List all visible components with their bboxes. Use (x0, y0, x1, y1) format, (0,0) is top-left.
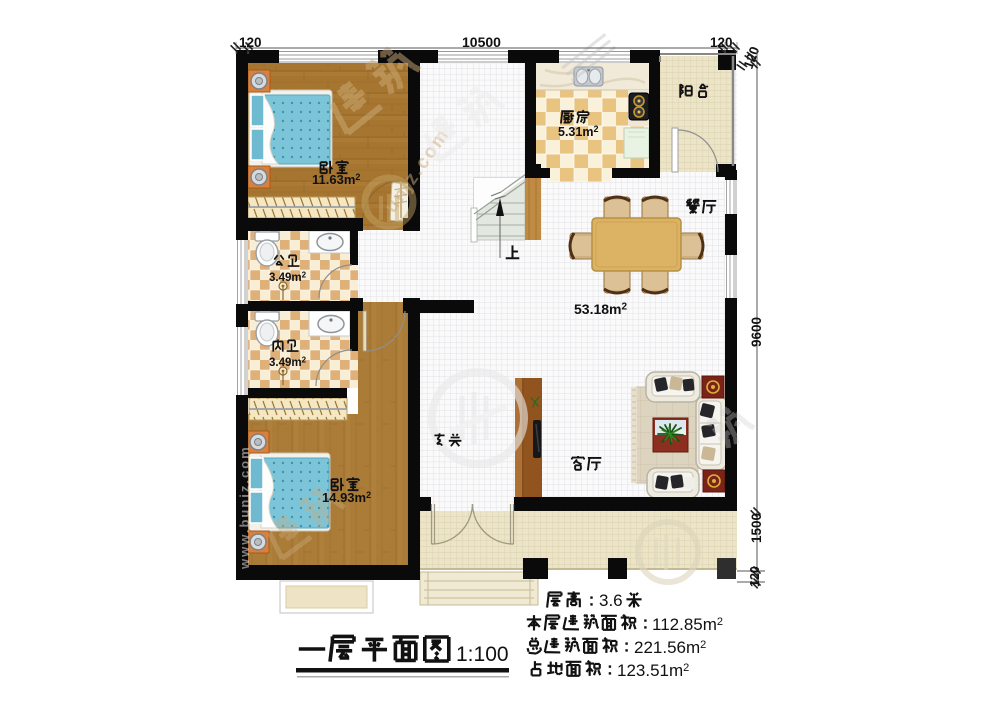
svg-text:123.51m2: 123.51m2 (617, 661, 689, 680)
svg-text:www.bunjz.com: www.bunjz.com (237, 445, 252, 570)
svg-text:3.49m2: 3.49m2 (269, 356, 307, 370)
svg-text:221.56m2: 221.56m2 (634, 638, 706, 657)
svg-text:120: 120 (748, 566, 762, 587)
svg-text:9600: 9600 (749, 317, 764, 347)
svg-text:14.93m2: 14.93m2 (322, 490, 371, 505)
svg-text:120: 120 (710, 35, 733, 50)
svg-text:1500: 1500 (749, 513, 764, 543)
svg-text:3.6: 3.6 (599, 591, 623, 610)
svg-text:5.31m2: 5.31m2 (558, 124, 598, 139)
svg-text:11.63m2: 11.63m2 (312, 172, 360, 187)
svg-text:120: 120 (239, 35, 262, 50)
svg-text:3.49m2: 3.49m2 (269, 271, 307, 285)
svg-text:10500: 10500 (462, 34, 501, 50)
svg-text:1:100: 1:100 (456, 643, 509, 666)
svg-text:53.18m2: 53.18m2 (574, 301, 627, 317)
svg-text:112.85m2: 112.85m2 (652, 615, 723, 634)
